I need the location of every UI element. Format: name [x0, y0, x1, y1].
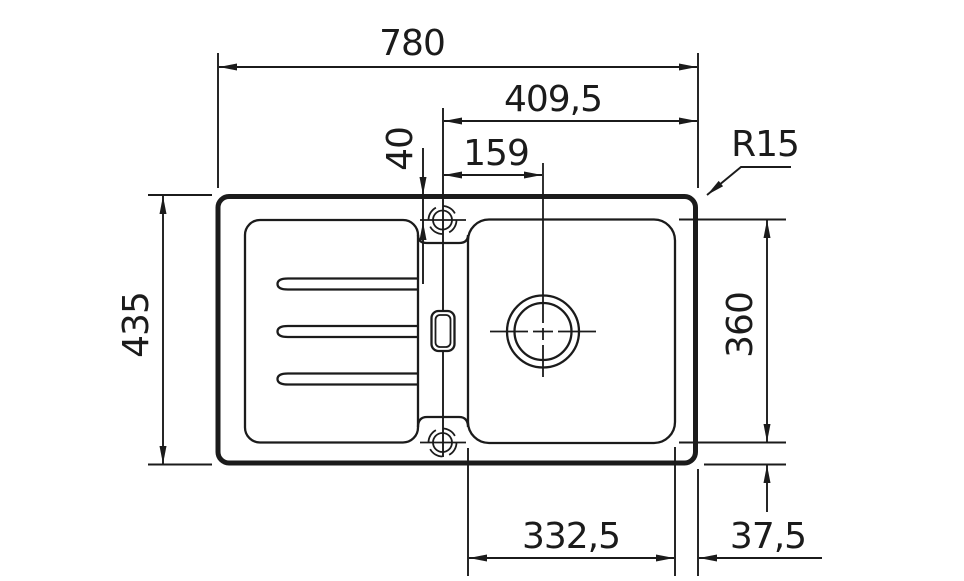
drainer-pocket: [245, 220, 418, 443]
dim-label-159: 159: [463, 133, 529, 174]
dim-side-margin: 37,5: [699, 516, 822, 562]
callout-corner-radius: R15: [707, 124, 799, 195]
dim-label-360: 360: [720, 292, 761, 358]
dim-tap-to-drain: 159: [444, 133, 542, 179]
drainer-rib: [278, 279, 419, 290]
main-bowl: [468, 163, 675, 443]
dim-label-r15: R15: [731, 124, 799, 165]
drainer-rib: [278, 374, 419, 385]
dim-bowl-width: 332,5: [468, 447, 698, 576]
dim-label-780: 780: [379, 23, 445, 64]
dim-overall-depth: 435: [116, 195, 212, 465]
accessory-knockout: [432, 311, 455, 351]
dim-tap-to-right: 409,5: [444, 79, 697, 125]
dim-label-409-5: 409,5: [504, 79, 602, 120]
dim-tap-offset: 40: [380, 127, 427, 284]
sink-outline: [218, 197, 696, 464]
dim-label-40: 40: [380, 127, 421, 171]
sink-dimension-drawing: 780 409,5 159 40 R15 435: [0, 0, 964, 581]
dim-overall-width: 780: [218, 23, 698, 188]
technical-drawing-canvas: 780 409,5 159 40 R15 435: [0, 0, 964, 581]
dim-label-332-5: 332,5: [522, 516, 620, 557]
dim-label-37-5: 37,5: [730, 516, 806, 557]
dim-label-435: 435: [116, 292, 157, 358]
drainer-rib: [278, 326, 419, 337]
